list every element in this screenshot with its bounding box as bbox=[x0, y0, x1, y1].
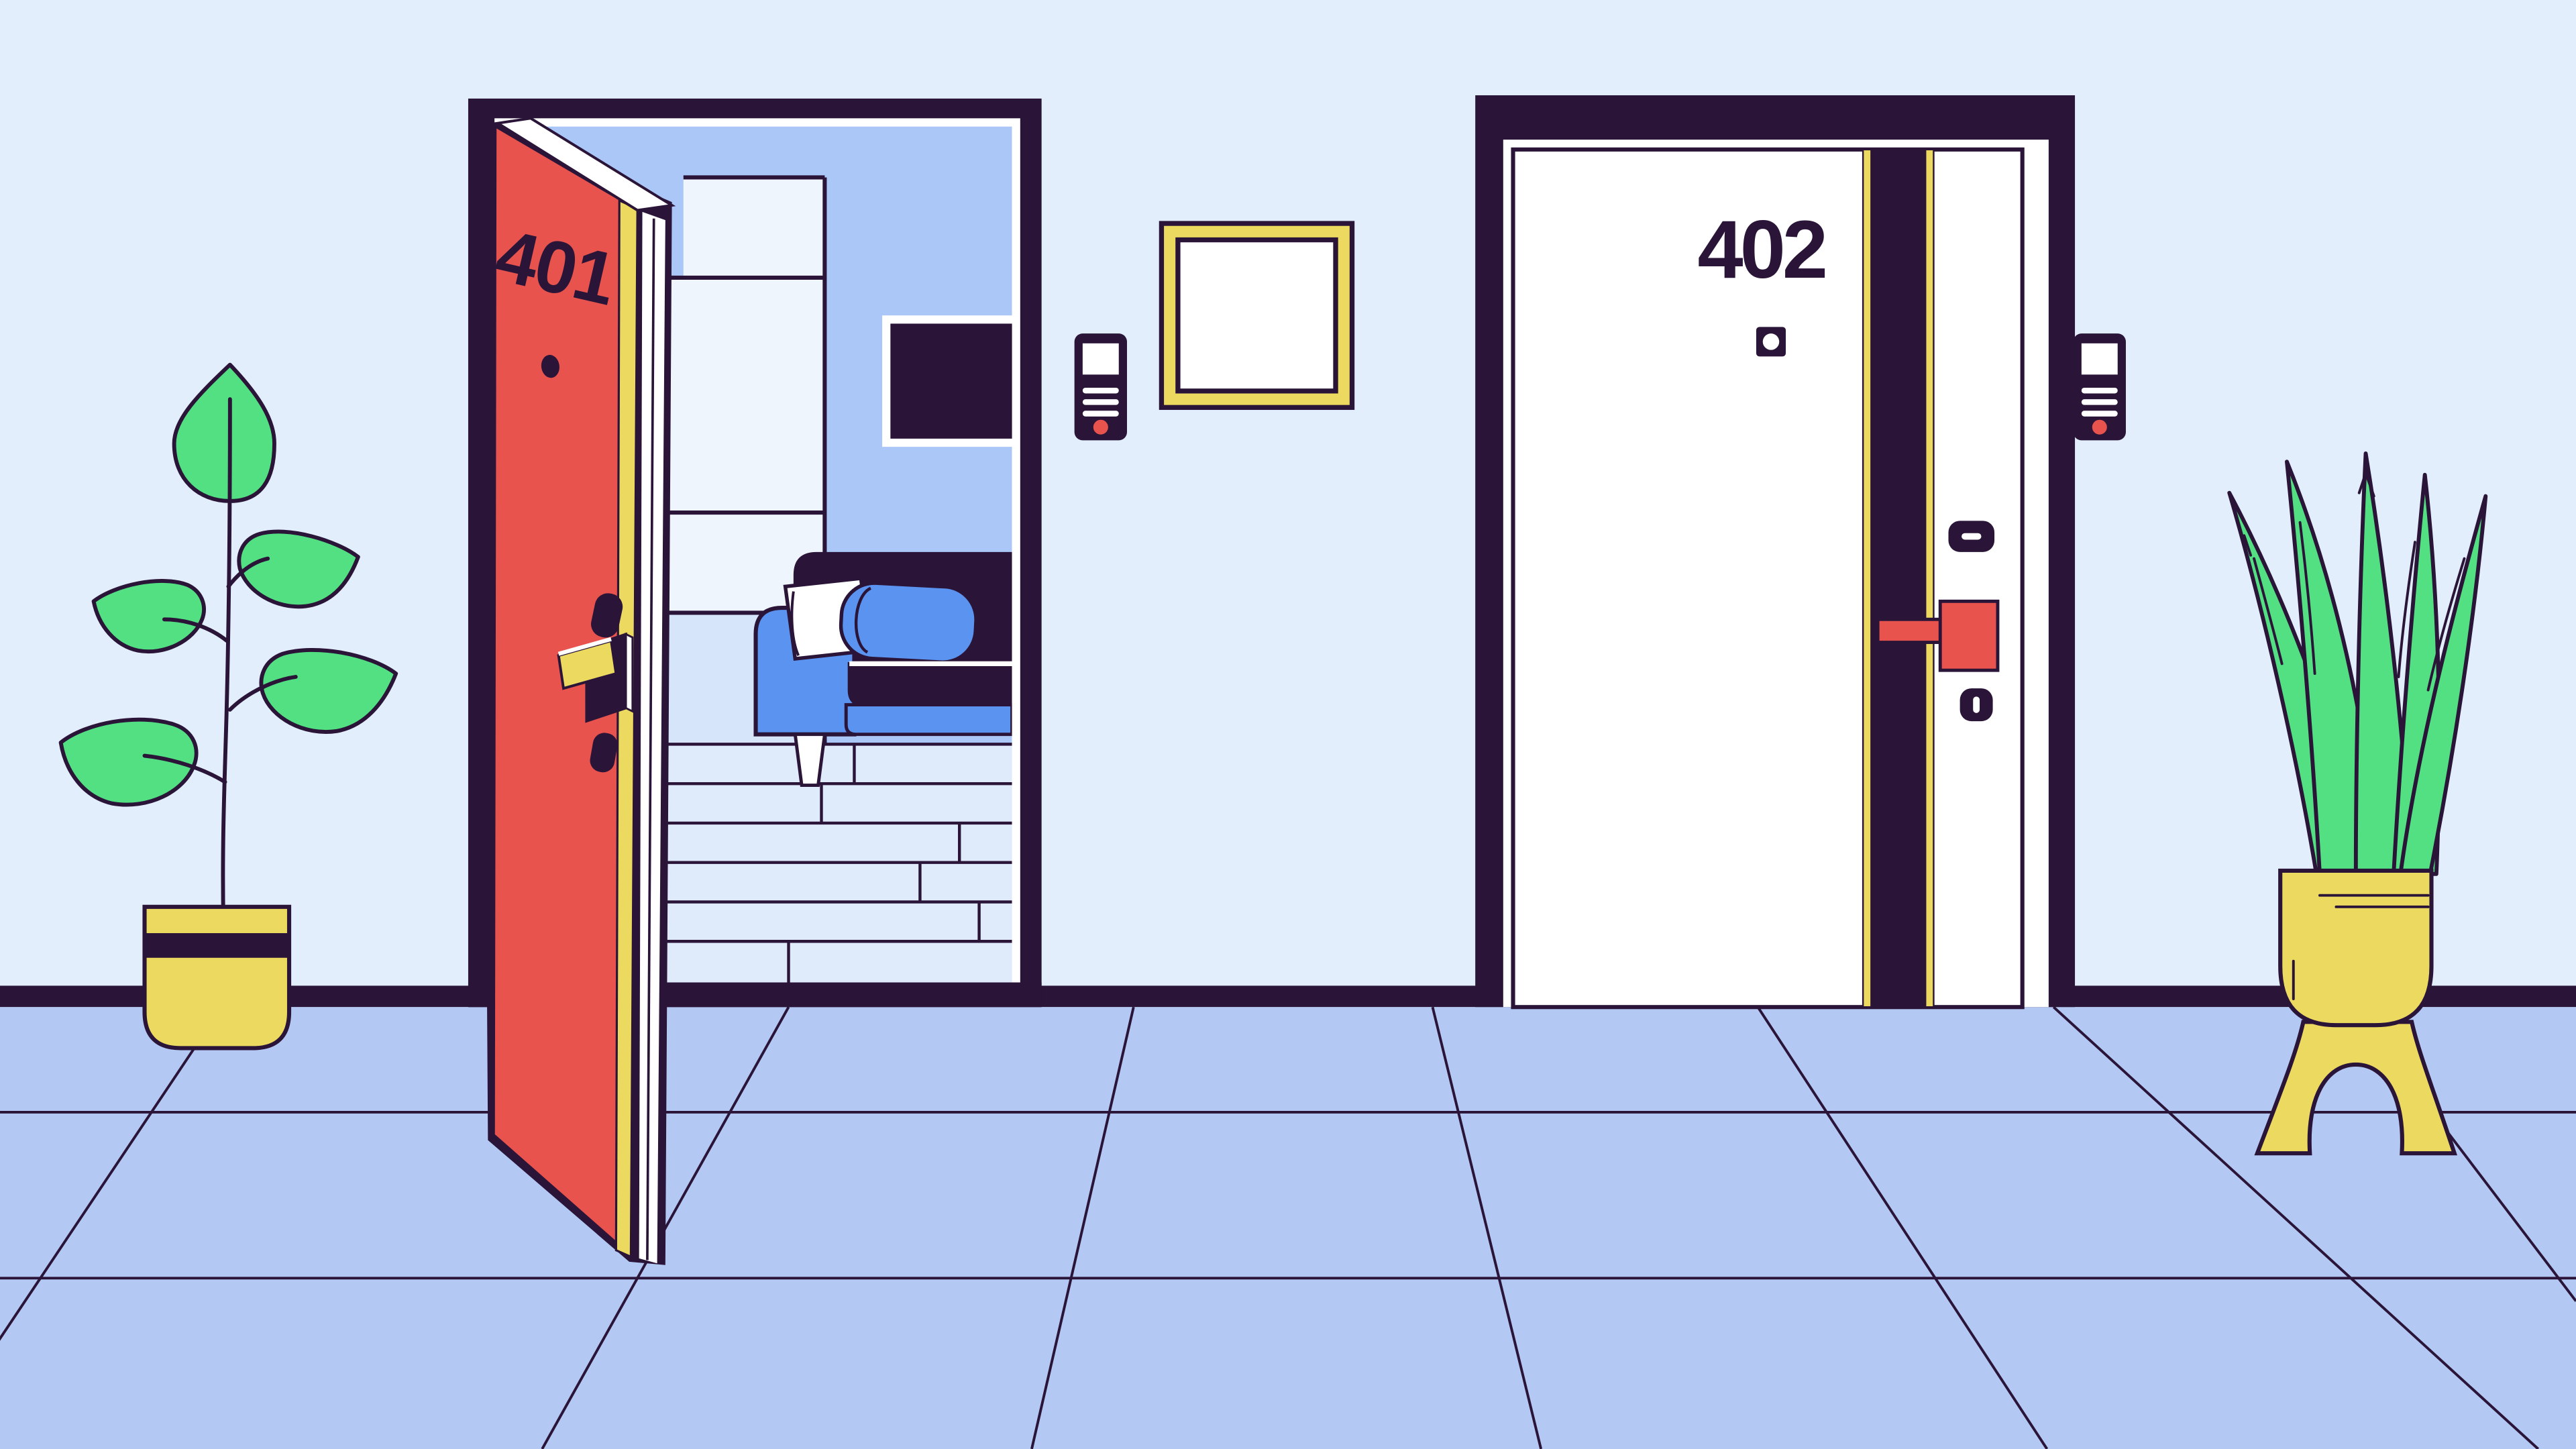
door-402-stripe-yellow-left bbox=[1863, 150, 1871, 1007]
door-402-number: 402 bbox=[1698, 203, 1825, 295]
door-402-stripe-dark bbox=[1871, 150, 1925, 1007]
intercom-402-call-button[interactable] bbox=[2092, 420, 2107, 435]
intercom-402[interactable] bbox=[2074, 333, 2126, 440]
intercom-401-screen bbox=[1083, 343, 1119, 375]
baseboard bbox=[0, 985, 2576, 1007]
door-402-stripe-yellow-right bbox=[1925, 150, 1933, 1007]
couch-leg bbox=[795, 735, 824, 786]
door-402-keyhole bbox=[1960, 688, 1993, 721]
couch-base bbox=[846, 705, 1012, 735]
intercom-402-speaker bbox=[2082, 388, 2118, 394]
door-402-card-lock[interactable] bbox=[1948, 521, 1994, 552]
right-plant-pot bbox=[2280, 871, 2431, 1025]
left-plant-pot bbox=[145, 907, 290, 1049]
picture-frame bbox=[1161, 223, 1352, 407]
intercom-401-call-button[interactable] bbox=[1093, 420, 1108, 435]
picture-frame-canvas bbox=[1178, 240, 1336, 391]
couch-seat bbox=[848, 662, 1012, 706]
door-402-peephole bbox=[1756, 327, 1786, 356]
intercom-402-screen bbox=[2082, 343, 2118, 375]
hall-wall bbox=[0, 0, 2576, 1007]
door-402[interactable]: 402 bbox=[1475, 95, 2075, 1007]
tv bbox=[882, 315, 1024, 447]
hallway-scene: 402 bbox=[0, 0, 2576, 1449]
blue-pillow bbox=[839, 582, 977, 664]
hall-floor bbox=[0, 1007, 2576, 1449]
intercom-401-speaker bbox=[1083, 388, 1119, 394]
door-401[interactable]: 401 bbox=[482, 118, 672, 1265]
intercom-401[interactable] bbox=[1075, 333, 1127, 440]
